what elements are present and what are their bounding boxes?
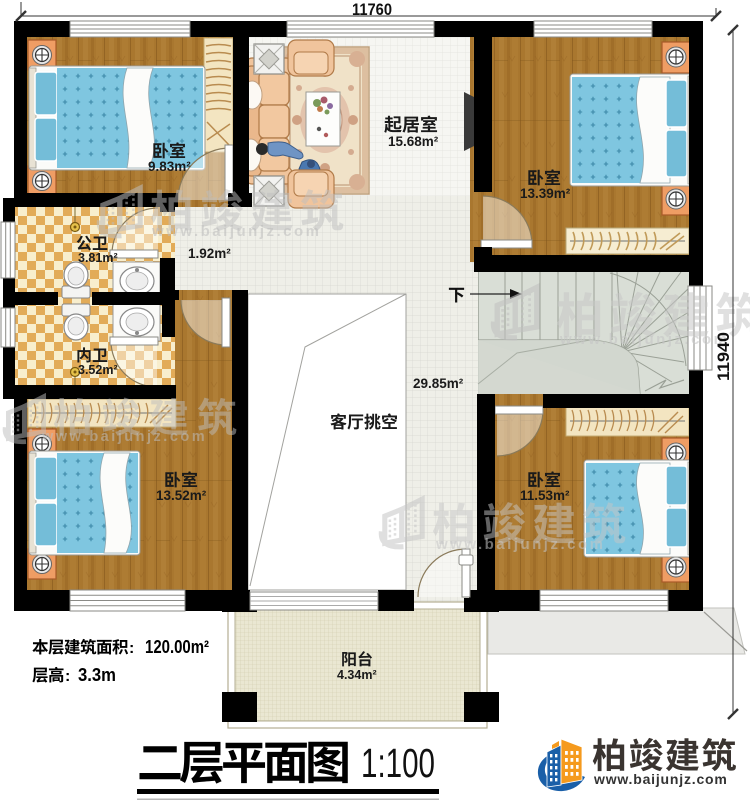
svg-text:29.85m²: 29.85m² bbox=[413, 376, 464, 391]
svg-text::: : bbox=[65, 668, 70, 685]
svg-text:3.52m²: 3.52m² bbox=[78, 363, 118, 377]
svg-text:11.53m²: 11.53m² bbox=[520, 488, 570, 503]
svg-text:9.83m²: 9.83m² bbox=[148, 159, 191, 174]
svg-text:13.52m²: 13.52m² bbox=[156, 488, 207, 503]
svg-text:www.baijunjz.com: www.baijunjz.com bbox=[151, 223, 321, 240]
svg-text:4.34m²: 4.34m² bbox=[337, 668, 377, 682]
svg-text:3.81m²: 3.81m² bbox=[78, 251, 118, 265]
svg-text:1:100: 1:100 bbox=[361, 740, 435, 786]
svg-text:3.3m: 3.3m bbox=[78, 665, 116, 685]
svg-text:1.92m²: 1.92m² bbox=[188, 246, 231, 261]
svg-text:13.39m²: 13.39m² bbox=[520, 186, 571, 201]
svg-text::: : bbox=[129, 640, 134, 657]
svg-text:www.baijunjz.com: www.baijunjz.com bbox=[41, 429, 207, 445]
svg-text:11760: 11760 bbox=[352, 0, 392, 19]
svg-text:120.00m²: 120.00m² bbox=[145, 637, 209, 657]
svg-text:11940: 11940 bbox=[714, 332, 733, 381]
svg-text:www.baijunjz.com: www.baijunjz.com bbox=[435, 536, 605, 553]
svg-text:www.baijunjz.com: www.baijunjz.com bbox=[559, 331, 729, 348]
svg-text:15.68m²: 15.68m² bbox=[388, 134, 439, 149]
svg-text:www.baijunjz.com: www.baijunjz.com bbox=[593, 771, 728, 787]
